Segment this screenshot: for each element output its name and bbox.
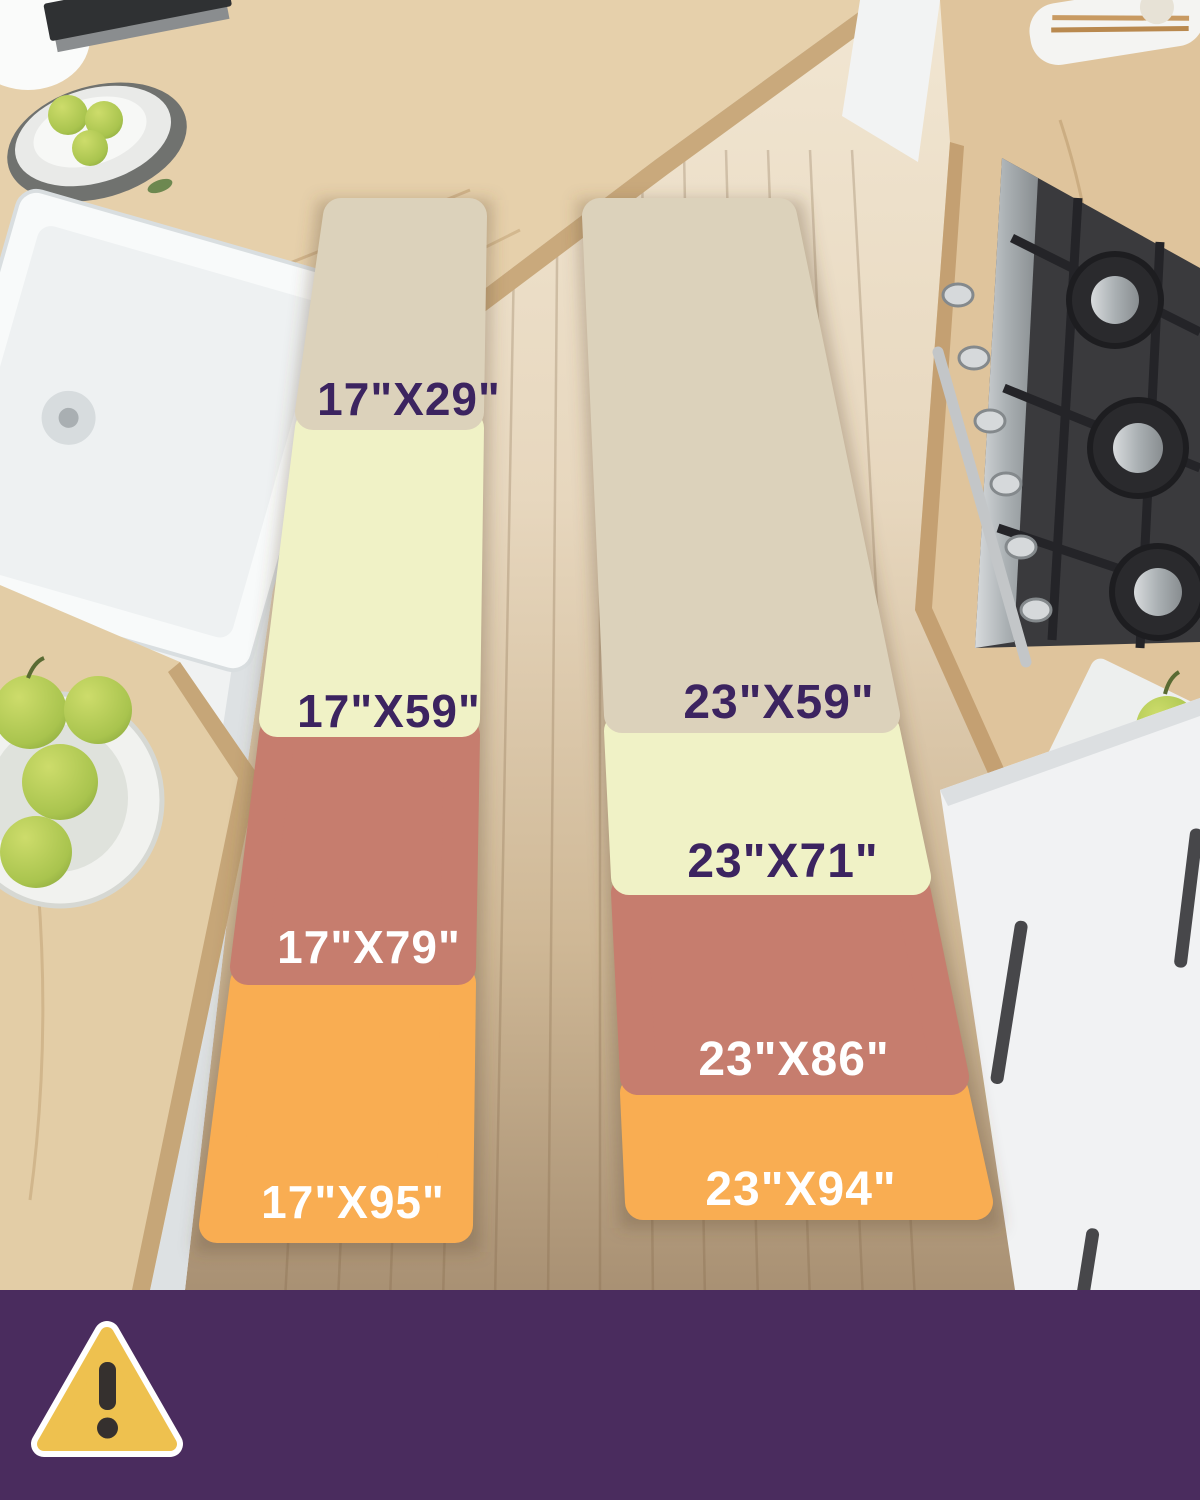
size-label-23x59: 23"X59" [683,679,874,727]
notice-banner: Choose Your Preferred Size — It Matters [0,1290,1200,1500]
product-image: 17"X29" 17"X59" 17"X79" 17"X95" 23"X59" … [0,0,1200,1500]
size-label-23x86: 23"X86" [698,1036,889,1084]
size-label-17x95: 17"X95" [261,1179,445,1225]
warning-triangle-icon [44,1334,170,1444]
banner-graphics [0,1290,1200,1500]
size-label-23x71: 23"X71" [687,838,878,886]
size-label-17x79: 17"X79" [277,924,461,970]
size-label-23x94: 23"X94" [705,1166,896,1214]
kitchen-scene [0,0,1200,1500]
size-label-17x29: 17"X29" [317,376,501,422]
mat-17x59-swatch [277,428,466,719]
size-label-17x59: 17"X59" [297,688,481,734]
